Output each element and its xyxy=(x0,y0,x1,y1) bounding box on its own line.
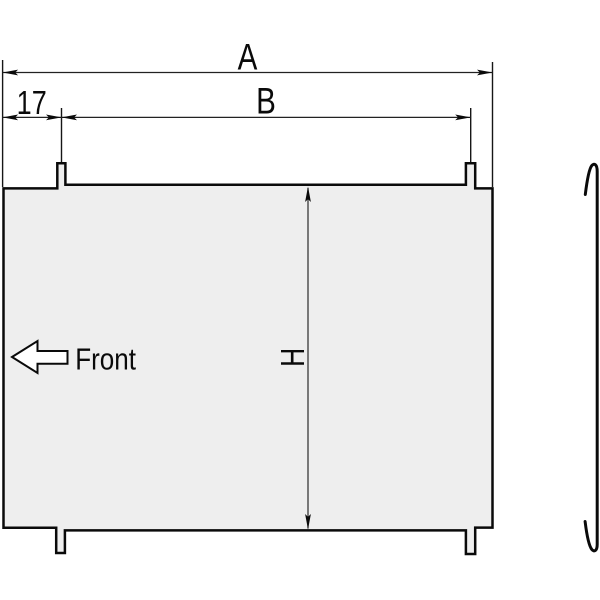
svg-text:Front: Front xyxy=(75,343,136,378)
svg-text:H: H xyxy=(275,348,311,367)
svg-text:A: A xyxy=(238,38,258,79)
svg-text:17: 17 xyxy=(17,86,47,122)
svg-text:B: B xyxy=(256,82,276,123)
